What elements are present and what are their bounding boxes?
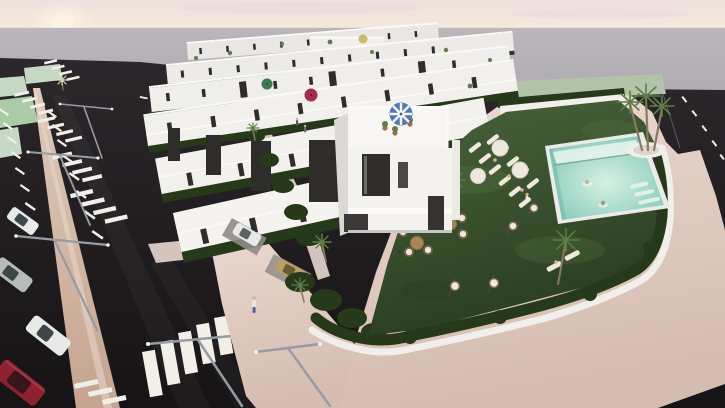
corner-building	[334, 103, 460, 237]
cloud-tint	[510, 9, 690, 19]
palm-fronds	[247, 123, 259, 133]
palm-fronds	[292, 278, 308, 292]
striped-parasol-blue	[390, 103, 413, 126]
terrace-parapet-side	[446, 106, 449, 148]
palm-fronds-pale	[56, 75, 68, 85]
architectural-render	[0, 0, 725, 408]
window-frame	[364, 156, 367, 194]
rooftop-parasol-magenta	[305, 89, 318, 102]
corner-right-wing	[452, 140, 460, 220]
rattan-table	[411, 237, 424, 250]
render-canvas	[0, 0, 725, 408]
standing-guest	[525, 193, 528, 203]
rooftop-parasol-green	[262, 79, 273, 90]
corner-base-shadow	[348, 230, 452, 233]
corner-door	[428, 196, 444, 230]
rooftop-parasol-tan	[359, 35, 368, 44]
palm-fronds	[313, 234, 331, 250]
corner-lower-glazing	[344, 214, 368, 232]
cloud-tint	[180, 2, 420, 14]
corner-small-window	[398, 162, 408, 188]
